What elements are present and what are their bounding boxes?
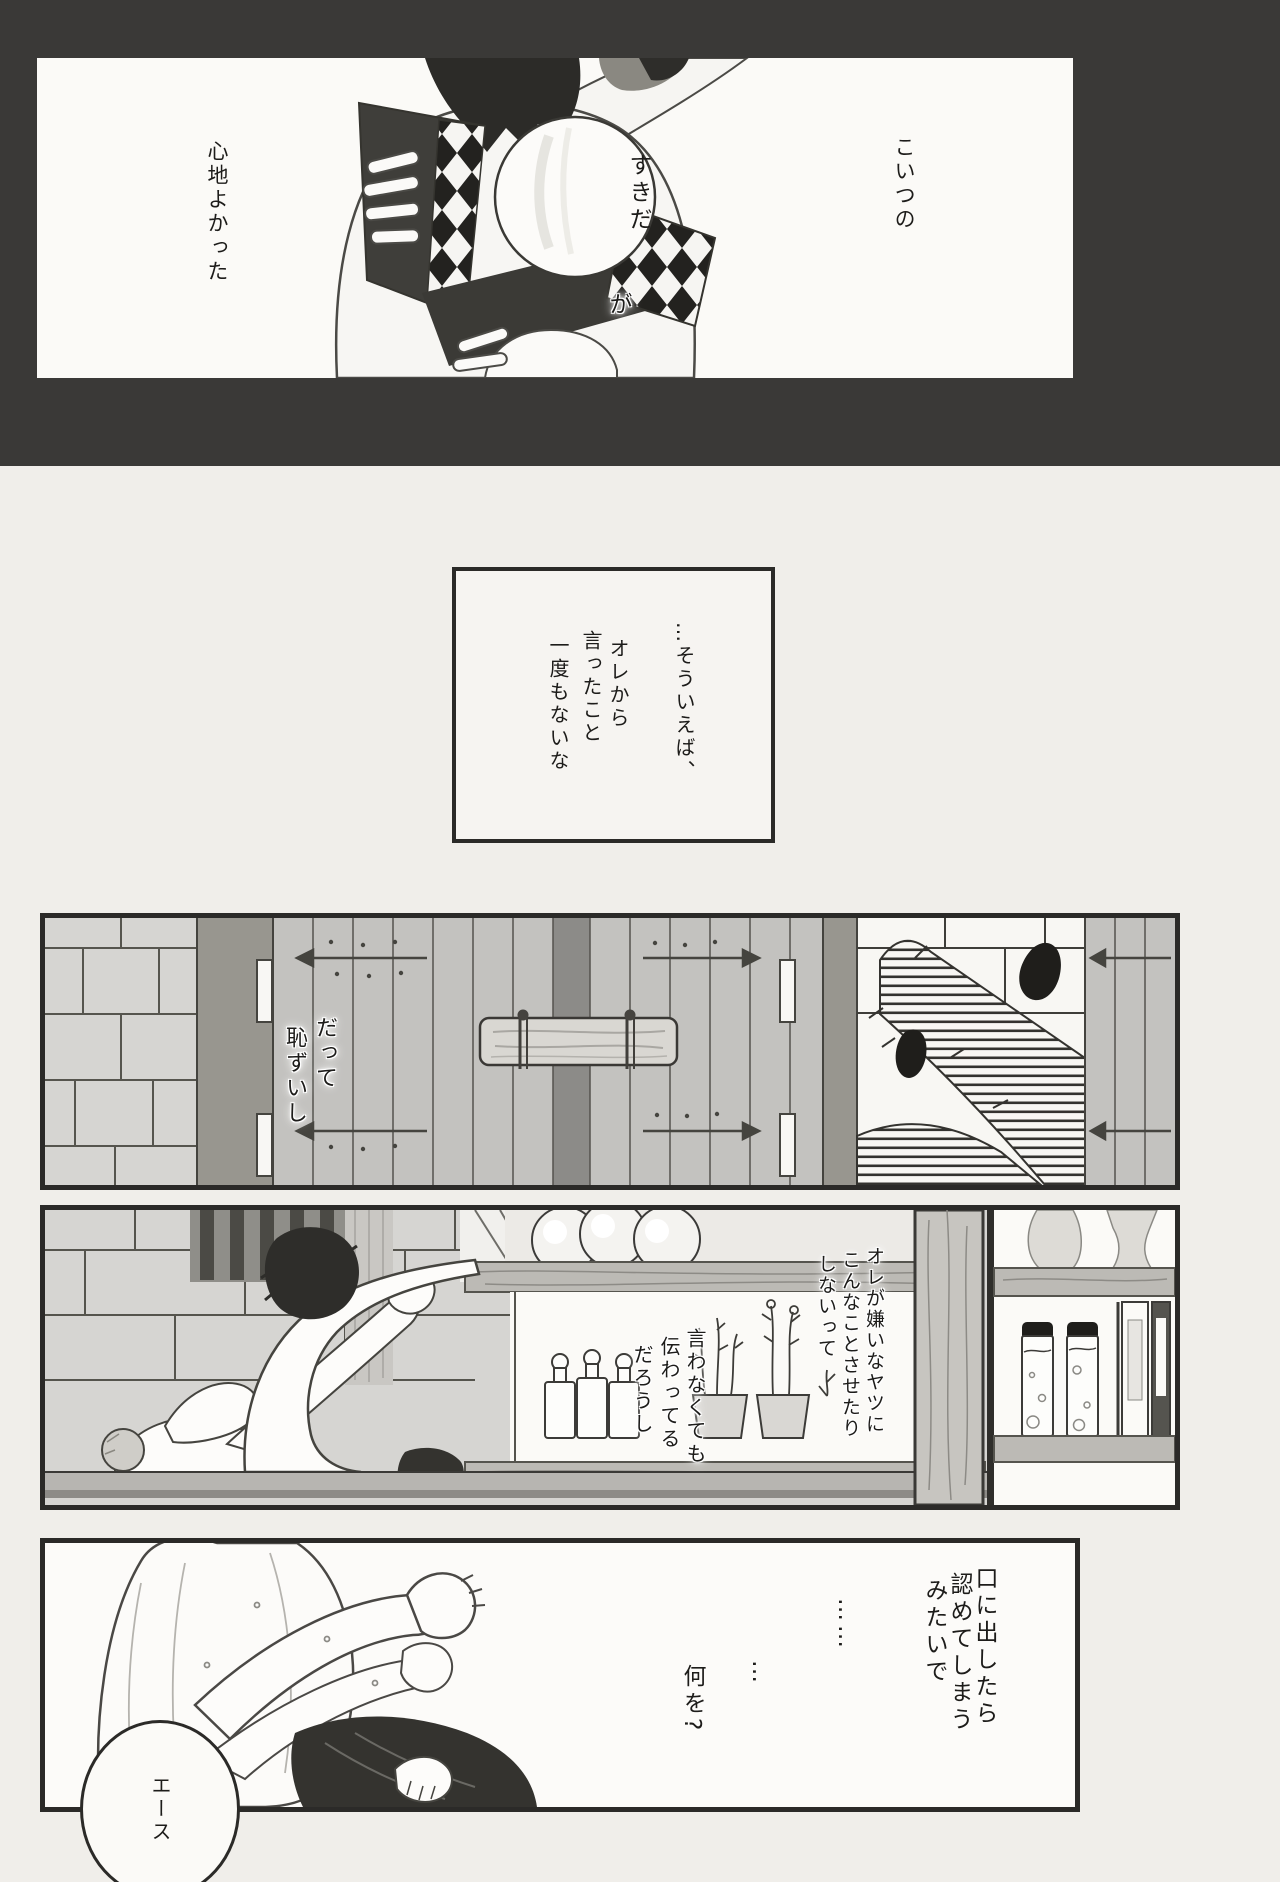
opening-embrace-art (37, 58, 1073, 378)
speech-line: しないって (816, 1254, 835, 1359)
narration-kokochi: 心地よかった (206, 140, 227, 284)
pause-ellipsis-long: …… (834, 1598, 857, 1652)
pause-ellipsis-short: … (748, 1660, 771, 1687)
bubble-word-sukida: すきだ (626, 153, 649, 234)
books (1118, 1302, 1170, 1436)
monologue-line: オレから (608, 638, 628, 730)
dialogue-datte: だって (313, 1016, 335, 1091)
panel-bar (40, 1205, 1180, 1510)
door-sliver (1085, 918, 1175, 1185)
speech-line: オレが嫌いなヤツに (864, 1246, 883, 1435)
dialogue-hazui: 恥ずいし (283, 1026, 305, 1126)
speech-line: だろうし (632, 1344, 652, 1436)
door-crossbar (480, 1010, 677, 1070)
bubble-particle-ga: が (606, 292, 629, 319)
panel-door (40, 913, 1180, 1190)
monologue-line: 一度もないな (548, 635, 568, 773)
narration-koitsu: こいつの (893, 136, 914, 232)
speech-line: 伝わってる (659, 1336, 679, 1451)
haystack (857, 918, 1085, 1185)
panel-opening (37, 58, 1073, 378)
speech-line: 言わなくても (685, 1328, 705, 1466)
manga-page: こいつの すきだ が 心地よかった …そういえば、 オレから 言ったこと 一度も… (0, 0, 1280, 1882)
door-art (45, 918, 1175, 1185)
monologue-line: 口に出したら (972, 1566, 995, 1728)
flasks (545, 1350, 639, 1438)
monologue-line: みたいで (922, 1578, 945, 1686)
monologue-line: …そういえば、 (674, 622, 694, 783)
bar-art (45, 1210, 1175, 1505)
bubble-name: エース (150, 1775, 170, 1844)
monologue-line: 言ったこと (581, 630, 601, 745)
question-naniwo: 何を? (680, 1664, 703, 1734)
speech-line: こんなことさせたり (840, 1250, 859, 1439)
monologue-line: 認めてしまう (947, 1572, 970, 1734)
